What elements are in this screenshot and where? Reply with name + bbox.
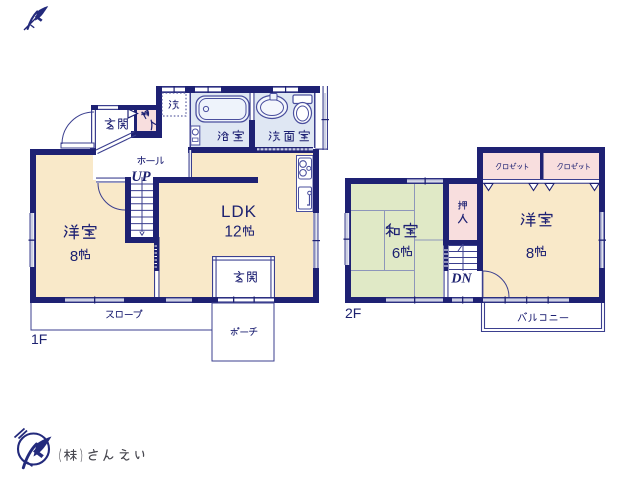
svg-text:DN: DN (450, 272, 472, 287)
svg-text:6: 6 (392, 245, 400, 262)
svg-text:UP: UP (131, 169, 150, 185)
svg-text:2F: 2F (345, 305, 361, 321)
svg-text:8: 8 (526, 245, 534, 262)
svg-text:8: 8 (70, 248, 78, 265)
svg-text:LDK: LDK (221, 202, 257, 221)
svg-text:1F: 1F (31, 331, 47, 347)
svg-text:12: 12 (224, 224, 241, 241)
